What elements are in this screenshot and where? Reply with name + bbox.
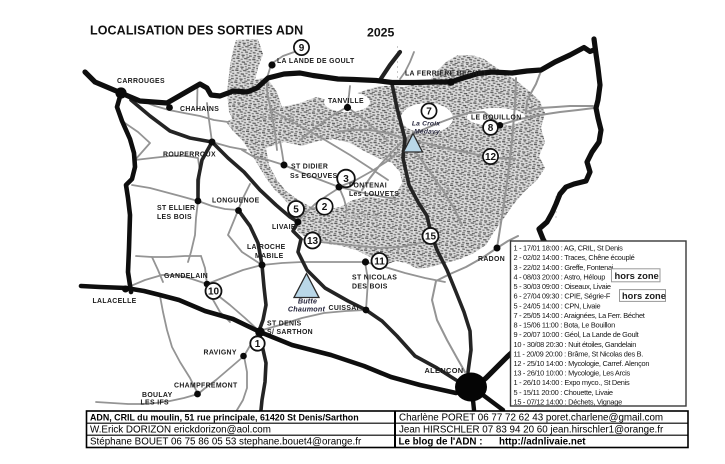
svg-text:11: 11 (374, 257, 385, 268)
svg-text:Lot n 2: Lot n 2 (431, 137, 461, 144)
svg-text:S/ SARTHON: S/ SARTHON (267, 329, 313, 336)
svg-text:10: 10 (208, 287, 220, 298)
svg-text:RADON: RADON (478, 256, 505, 263)
svg-text:LALACELLE: LALACELLE (93, 298, 137, 305)
svg-text:FONTENAI: FONTENAI (349, 183, 387, 190)
svg-text:CARROUGES: CARROUGES (117, 78, 165, 85)
svg-text:Ss ECOUVES: Ss ECOUVES (290, 173, 338, 180)
svg-text:LIVAIE: LIVAIE (272, 224, 296, 231)
svg-text:2: 2 (322, 202, 328, 213)
svg-text:LA ROCHE: LA ROCHE (247, 244, 286, 251)
svg-text:Le blog de l'ADN :: Le blog de l'ADN : (399, 437, 483, 448)
svg-text:Médavy: Médavy (414, 129, 440, 136)
svg-text:Lot n 5: Lot n 5 (345, 212, 378, 221)
svg-text:12 - 25/10 14:00 : Mycologie,: 12 - 25/10 14:00 : Mycologie, Carref. Al… (514, 359, 650, 368)
svg-text:Les LOUVETS: Les LOUVETS (349, 191, 399, 198)
svg-text:ST DIDIER: ST DIDIER (291, 164, 328, 171)
svg-text:LONGUENOE: LONGUENOE (212, 198, 260, 205)
svg-text:MABILE: MABILE (255, 253, 284, 260)
svg-text:1 - 26/10 14:00 : Expo myco.,: 1 - 26/10 14:00 : Expo myco., St Denis (514, 378, 630, 387)
svg-text:Charlène PORET 06 77 72 62 43: Charlène PORET 06 77 72 62 43 poret.char… (399, 413, 663, 424)
svg-text:8: 8 (488, 123, 494, 134)
svg-text:Lot n 3: Lot n 3 (418, 186, 451, 195)
svg-text:3: 3 (343, 174, 349, 185)
svg-text:LA FERRIERE BECHET: LA FERRIERE BECHET (405, 71, 488, 78)
svg-text:7 - 25/05 14:00 : Araignées, L: 7 - 25/05 14:00 : Araignées, La Ferr. Bé… (514, 311, 645, 320)
svg-text:5 - 30/03 09:00 : Oiseaux, Liv: 5 - 30/03 09:00 : Oiseaux, Livaie (514, 282, 611, 291)
svg-text:Jean HIRSCHLER 07 83 94 20 60: Jean HIRSCHLER 07 83 94 20 60 jean.hirsc… (399, 425, 664, 436)
svg-text:1 - 17/01 18:00 : AG, CRIL, St: 1 - 17/01 18:00 : AG, CRIL, St Denis (514, 244, 624, 253)
svg-text:6 - 27/04 09:30 : CPIE, Ségrie: 6 - 27/04 09:30 : CPIE, Ségrie-F (514, 292, 611, 301)
svg-text:5 - 15/11 20:00 : Chouette, Li: 5 - 15/11 20:00 : Chouette, Livaie (514, 388, 613, 397)
svg-text:9 - 20/07 10:00 : Géol, La Lan: 9 - 20/07 10:00 : Géol, La Lande de Goul… (514, 330, 639, 339)
svg-text:15 - 07/12 14:00 : Déchets, Vi: 15 - 07/12 14:00 : Déchets, Vignage (514, 398, 623, 407)
svg-text:2025: 2025 (367, 26, 395, 40)
svg-text:DES BOIS: DES BOIS (352, 284, 388, 291)
svg-text:W.Erick DORIZON erickdorizon@a: W.Erick DORIZON erickdorizon@aol.com (90, 425, 271, 436)
svg-text:ROUPERROUX: ROUPERROUX (163, 152, 216, 159)
svg-text:12: 12 (485, 152, 497, 163)
svg-text:hors zone: hors zone (622, 291, 666, 301)
svg-text:Chaumont: Chaumont (288, 305, 326, 314)
svg-text:9: 9 (299, 43, 305, 54)
svg-text:CHAMPFREMONT: CHAMPFREMONT (174, 383, 238, 390)
svg-text:3 - 22/02 14:00 : Greffe, Font: 3 - 22/02 14:00 : Greffe, Fontenai (514, 263, 614, 272)
svg-text:RAVIGNY: RAVIGNY (204, 350, 237, 357)
svg-text:ALENÇON: ALENÇON (425, 366, 464, 375)
svg-text:LE BOUILLON: LE BOUILLON (471, 115, 522, 122)
svg-text:11 - 20/09 20:00 : Brâme, St N: 11 - 20/09 20:00 : Brâme, St Nicolas des… (514, 349, 644, 358)
svg-text:4 - 08/03 20:00 : Astro, Hélou: 4 - 08/03 20:00 : Astro, Héloup (514, 272, 606, 281)
svg-text:8 - 15/06 11:00 : Bota, Le Bou: 8 - 15/06 11:00 : Bota, Le Bouillon (514, 321, 616, 330)
svg-text:hors zone: hors zone (615, 270, 659, 281)
svg-text:GANDELAIN: GANDELAIN (164, 273, 208, 280)
svg-text:1: 1 (255, 339, 261, 350)
svg-text:ST NICOLAS: ST NICOLAS (352, 275, 397, 282)
svg-text:TANVILLE: TANVILLE (328, 98, 364, 105)
svg-text:13: 13 (307, 236, 319, 247)
svg-text:2 - 02/02 14:00 : Traces, Chên: 2 - 02/02 14:00 : Traces, Chêne écouplé (514, 253, 635, 262)
svg-text:http://adnlivaie.net: http://adnlivaie.net (499, 437, 586, 448)
svg-text:13 - 26/10 10:00 : Mycologie,: 13 - 26/10 10:00 : Mycologie, Les Arcis (514, 369, 631, 378)
svg-text:5 - 24/05 14:00 : CPN, Livaie: 5 - 24/05 14:00 : CPN, Livaie (514, 301, 601, 310)
svg-text:La Croix: La Croix (412, 121, 440, 128)
svg-text:ST ELLIER: ST ELLIER (157, 205, 195, 212)
svg-text:LA LANDE DE GOULT: LA LANDE DE GOULT (277, 58, 355, 65)
svg-text:7: 7 (426, 107, 432, 118)
svg-text:5: 5 (293, 205, 299, 216)
svg-text:15: 15 (425, 232, 437, 243)
svg-text:10 - 30/08 20:30 : Nuit étoile: 10 - 30/08 20:30 : Nuit étoiles, Gandela… (514, 340, 637, 349)
svg-text:CHAHAINS: CHAHAINS (180, 106, 219, 113)
svg-text:BOULAY: BOULAY (142, 392, 173, 399)
svg-text:LES IFS: LES IFS (141, 400, 170, 407)
svg-text:ADN, CRIL du moulin, 51 rue pr: ADN, CRIL du moulin, 51 rue principale, … (90, 413, 359, 423)
svg-text:CUISSAI: CUISSAI (329, 305, 359, 312)
svg-text:Stéphane BOUET 06 75 86 05 53: Stéphane BOUET 06 75 86 05 53 stephane.b… (90, 437, 362, 448)
svg-text:LES BOIS: LES BOIS (157, 214, 192, 221)
svg-text:ST DENIS: ST DENIS (267, 321, 302, 328)
svg-text:LOCALISATION DES SORTIES ADN: LOCALISATION DES SORTIES ADN (90, 24, 303, 38)
